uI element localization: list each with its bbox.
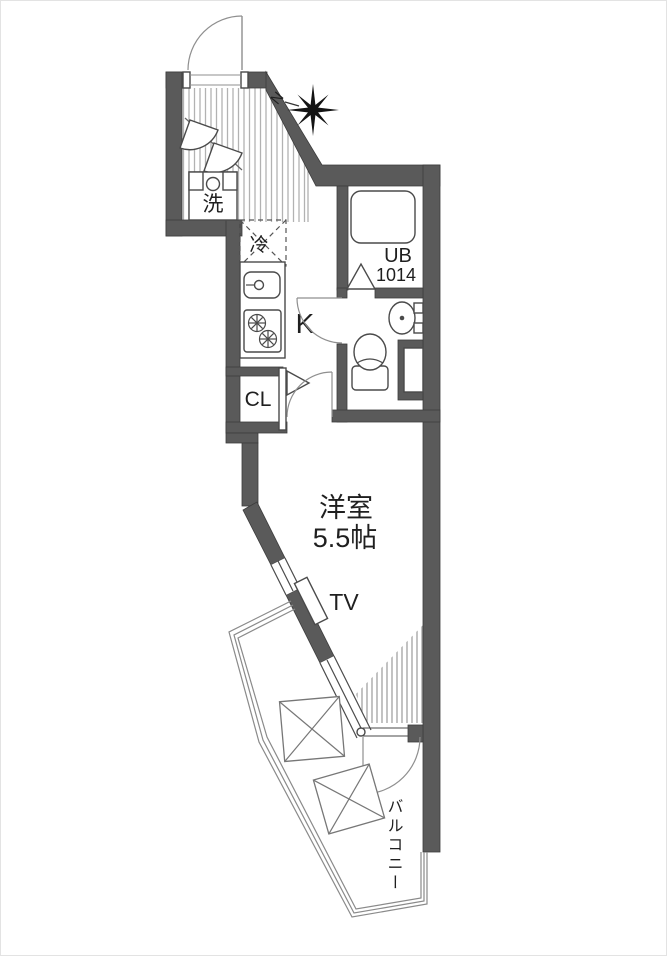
bath-label: UB [384,245,412,267]
washer-tap-box-left [189,172,203,190]
floor-plan-svg: 洗 冷 K CL UB 1014 [0,0,667,956]
closet-door-strip [279,368,286,430]
entrance-jamb-right [241,72,248,88]
bathtub [351,191,415,243]
washer-label: 洗 [203,193,224,216]
main-room-label: 洋室 [319,493,373,523]
toilet-bowl [354,334,386,370]
kitchen-burner-1 [249,315,266,332]
wall-bath-toilet-divider-left [337,288,347,298]
wall-bath-toilet-divider-right [375,288,423,298]
wall-right [423,165,440,852]
unit-bath: UB 1014 [347,191,416,289]
wall-kitchen-left [226,220,240,433]
balcony-door-pivot [357,728,365,736]
wall-closet-bottom [226,422,287,433]
kitchen-faucet [255,281,264,290]
washbasin-drain [400,316,405,321]
balcony-box-1 [279,696,344,761]
kitchen-counter [240,262,285,358]
wall-room-top [332,410,440,422]
balcony-label: バルコニー [385,798,403,893]
bath-size-label: 1014 [376,265,416,285]
tv-label: TV [329,589,359,615]
wall-left-lower [242,443,258,506]
kitchen-burner-2 [260,331,277,348]
main-room-size-label: 5.5帖 [313,523,378,553]
wall-left-upper [166,72,182,236]
washbasin-bracket-bottom [414,323,423,333]
washer-tap-box-right [223,172,237,190]
closet-label: CL [245,388,272,411]
entrance-jamb-left [183,72,190,88]
toilet-niche [404,348,423,392]
wall-bath-left [337,186,348,290]
fridge-label: 冷 [249,234,268,256]
washbasin-bracket-top [414,303,423,313]
wall-balcony-door-stub [408,725,423,742]
washer-area: 洗 [189,172,237,220]
washer-drain [207,178,220,191]
floor-plan-page: 洗 冷 K CL UB 1014 [0,0,667,956]
wall-closet-top [226,367,283,376]
wall-step-lower [226,433,258,443]
